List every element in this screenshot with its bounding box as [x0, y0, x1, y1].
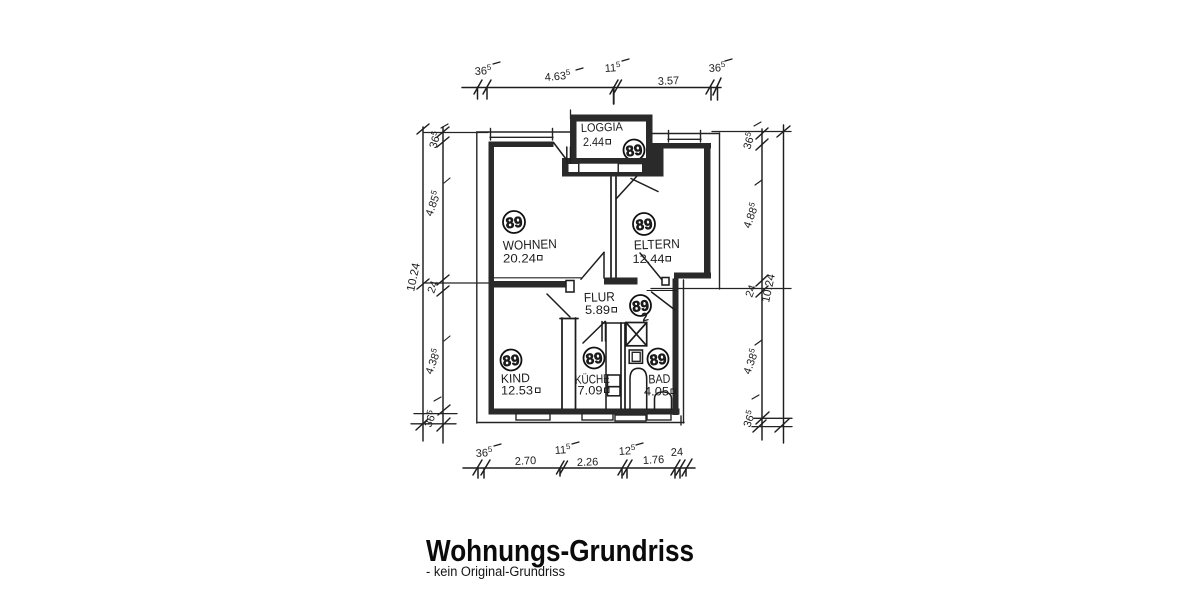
svg-text:89: 89	[502, 352, 520, 371]
svg-text:365: 365	[740, 130, 759, 151]
svg-text:89: 89	[635, 216, 653, 235]
svg-text:4.05: 4.05	[644, 387, 669, 399]
svg-text:3.57: 3.57	[658, 75, 680, 88]
svg-text:4.635: 4.635	[544, 68, 572, 84]
svg-text:115: 115	[554, 442, 571, 457]
svg-text:365: 365	[708, 60, 726, 75]
svg-text:12.53: 12.53	[501, 386, 533, 398]
svg-text:2.26: 2.26	[577, 456, 599, 469]
svg-text:115: 115	[604, 60, 621, 75]
svg-text:LOGGIA: LOGGIA	[581, 120, 623, 135]
svg-text:24: 24	[426, 279, 441, 295]
svg-text:89: 89	[505, 214, 523, 233]
svg-text:12.44: 12.44	[633, 254, 666, 266]
svg-text:89: 89	[625, 141, 644, 160]
svg-text:10.24: 10.24	[405, 261, 423, 292]
svg-text:2.70: 2.70	[515, 455, 537, 468]
svg-text:20.24: 20.24	[503, 254, 537, 266]
svg-text:125: 125	[618, 443, 636, 458]
svg-text:89: 89	[585, 350, 603, 369]
svg-text:89: 89	[649, 351, 667, 370]
svg-text:4.885: 4.885	[740, 200, 762, 230]
svg-text:ELTERN: ELTERN	[634, 236, 680, 253]
svg-text:WOHNEN: WOHNEN	[503, 236, 557, 253]
svg-text:24: 24	[671, 446, 684, 459]
svg-text:4.855: 4.855	[422, 188, 444, 218]
svg-text:5.89: 5.89	[585, 305, 610, 317]
svg-text:FLUR: FLUR	[584, 289, 616, 305]
svg-text:4.385: 4.385	[422, 346, 444, 376]
svg-text:BAD: BAD	[648, 372, 670, 387]
svg-text:KIND: KIND	[501, 371, 530, 386]
svg-text:365: 365	[475, 445, 493, 460]
svg-text:2.44: 2.44	[583, 137, 605, 149]
svg-text:4.385: 4.385	[740, 346, 762, 376]
svg-text:1.76: 1.76	[643, 454, 665, 467]
svg-text:365: 365	[474, 63, 492, 78]
svg-text:7.09: 7.09	[578, 386, 603, 398]
